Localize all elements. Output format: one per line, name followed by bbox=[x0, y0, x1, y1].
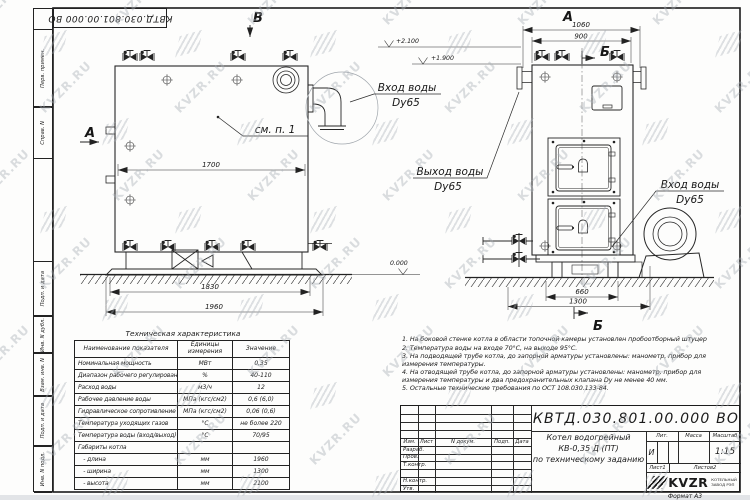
side-flanges bbox=[517, 67, 646, 89]
row-name: Номинальная мощность bbox=[75, 358, 178, 370]
sheet-value: 1 bbox=[662, 465, 665, 471]
section-label-b-top: Б bbox=[600, 45, 610, 60]
margin-box: Справ. N bbox=[34, 107, 52, 159]
inlet-label-right-line2: Dy65 bbox=[676, 194, 704, 206]
tech-header-name: Наименование показателя bbox=[75, 341, 178, 358]
note-item: 2. Температура воды на входе 70°С, на вы… bbox=[402, 345, 738, 353]
detail-boundary-circle bbox=[306, 72, 378, 144]
dim-1830: 1830 bbox=[201, 283, 219, 291]
table-row: Номинальная мощностьМВт0,35 bbox=[75, 358, 290, 370]
row-name: - высота bbox=[75, 478, 178, 490]
kvzr-logo-subtitle: КОТЕЛЬНЫЙ ЗАВОД РЭП bbox=[711, 478, 737, 487]
top-stamp-number: КВТД.030.801.00.000 ВО bbox=[48, 13, 172, 23]
row-unit: мм bbox=[178, 454, 233, 466]
col-izm: Изм. bbox=[401, 438, 418, 446]
margin-label: Взам. инв. N bbox=[40, 358, 46, 392]
margin-box: Перв. примен. bbox=[34, 29, 52, 107]
row-unit: МПа (кгс/см2) bbox=[178, 394, 233, 406]
sig-utv: Утв. bbox=[401, 485, 435, 493]
row-name: - ширина bbox=[75, 466, 178, 478]
drawing-sheet: 1700 1830 1960 1060 900 660 1300 +2.100 … bbox=[0, 0, 750, 500]
margin-box: Подп. и дата bbox=[34, 396, 52, 446]
inlet-label-left-line2: Dy65 bbox=[392, 97, 420, 109]
lower-furnace-door bbox=[548, 199, 620, 255]
row-name: - длина bbox=[75, 454, 178, 466]
front-base bbox=[536, 255, 642, 278]
sheet-label: Лист bbox=[649, 465, 662, 471]
col-data: Дата bbox=[513, 438, 531, 446]
table-row: Расход водым3/ч12 bbox=[75, 382, 290, 394]
col-list: Лист bbox=[418, 438, 435, 446]
row-name: Габариты котла bbox=[75, 442, 178, 454]
note-item: 1. На боковой стенке котла в области топ… bbox=[402, 336, 738, 344]
col-podp: Подп. bbox=[491, 438, 513, 446]
table-row: Температура уходящих газов°Сне более 220 bbox=[75, 418, 290, 430]
row-unit: мм bbox=[178, 466, 233, 478]
row-value: 0,06 (0,6) bbox=[233, 406, 290, 418]
row-value: 1300 bbox=[233, 466, 290, 478]
product-name-line: по техническому заданию bbox=[533, 455, 644, 466]
view-label-a-top: А bbox=[562, 10, 573, 25]
row-name: Температура уходящих газов bbox=[75, 418, 178, 430]
product-name-line: КВ-0,35 Д (ПТ) bbox=[558, 444, 618, 455]
skid-base bbox=[106, 250, 322, 275]
ground-lines bbox=[80, 275, 714, 288]
table-row: Рабочее давление водыМПа (кгс/см2)0,6 (6… bbox=[75, 394, 290, 406]
table-row: Диапазон рабочего регулирования%40-110 bbox=[75, 370, 290, 382]
row-unit: м3/ч bbox=[178, 382, 233, 394]
product-name: Котел водогрейный КВ-0,35 Д (ПТ) по техн… bbox=[531, 433, 646, 491]
blower-fan bbox=[639, 208, 704, 278]
row-unit: МВт bbox=[178, 358, 233, 370]
note-item: 5. Остальные технические требования по О… bbox=[402, 385, 738, 393]
elevation-marks bbox=[352, 41, 521, 275]
boiler-front-view bbox=[483, 48, 704, 285]
sig-tkontr: Т.контр. bbox=[401, 461, 435, 469]
lit-value: И bbox=[646, 441, 657, 463]
scale-label: Масштаб bbox=[709, 431, 741, 441]
left-margin-strip: Перв. примен. Справ. N Подп. и дата Инв.… bbox=[33, 8, 53, 492]
row-name: Рабочее давление воды bbox=[75, 394, 178, 406]
margin-box: Инв. N подл. bbox=[34, 446, 52, 493]
document-number: КВТД.030.801.00.000 ВО bbox=[531, 406, 741, 431]
dimensions bbox=[106, 26, 650, 316]
table-row: Габариты котла bbox=[75, 442, 290, 454]
elevation-1900: +1.900 bbox=[431, 55, 454, 62]
margin-box: Взам. инв. N bbox=[34, 353, 52, 396]
mass-label: Масса bbox=[678, 431, 709, 441]
section-label-b-bottom: Б bbox=[593, 319, 603, 334]
view-label-a-left: А bbox=[84, 126, 95, 141]
sheets-label: Листов bbox=[694, 465, 713, 471]
margin-label: Справ. N bbox=[40, 121, 46, 145]
sheets-total: Листов2 bbox=[669, 463, 741, 472]
inlet-label-left-line1: Вход воды bbox=[378, 82, 437, 94]
inlet-label-right-line1: Вход воды bbox=[661, 179, 720, 191]
control-panel bbox=[592, 86, 622, 110]
format-label: Формат А3 bbox=[640, 493, 730, 500]
margin-box: Подп. и дата bbox=[34, 261, 52, 316]
tech-header-value: Значение bbox=[233, 341, 290, 358]
inlet-elbow bbox=[308, 85, 346, 130]
margin-label: Подп. и дата bbox=[40, 403, 46, 438]
margin-label: Перв. примен. bbox=[40, 49, 46, 88]
elevation-0000: 0.000 bbox=[390, 260, 408, 267]
dim-1700: 1700 bbox=[202, 161, 220, 169]
row-unit: мм bbox=[178, 478, 233, 490]
scale-value: 1:15 bbox=[709, 441, 741, 463]
product-name-line: Котел водогрейный bbox=[547, 433, 631, 444]
row-value: не более 220 bbox=[233, 418, 290, 430]
row-value: 12 bbox=[233, 382, 290, 394]
tech-table: Наименование показателя Единицы измерени… bbox=[74, 340, 290, 490]
tech-characteristics: Техническая характеристика Наименование … bbox=[74, 329, 292, 490]
row-value: 2100 bbox=[233, 478, 290, 490]
sheets-value: 2 bbox=[713, 465, 716, 471]
kvzr-logo-text: KVZR bbox=[668, 475, 708, 490]
margin-label: Подп. и дата bbox=[40, 271, 46, 306]
row-value: 0,35 bbox=[233, 358, 290, 370]
row-unit: % bbox=[178, 370, 233, 382]
row-value: 70/95 bbox=[233, 430, 290, 442]
row-value: 0,6 (6,0) bbox=[233, 394, 290, 406]
row-name: Гидравлическое сопротивление котла bbox=[75, 406, 178, 418]
table-row: - длинамм1960 bbox=[75, 454, 290, 466]
margin-label: Инв. N дубл. bbox=[40, 318, 46, 352]
title-block: Изм. Лист N докум. Подп. Дата Разраб. Пр… bbox=[400, 405, 740, 492]
table-row: Гидравлическое сопротивление котлаМПа (к… bbox=[75, 406, 290, 418]
table-row: Температура воды (вход/выход)°С70/95 bbox=[75, 430, 290, 442]
row-value: 40-110 bbox=[233, 370, 290, 382]
detail-reference: см. п. 1 bbox=[255, 124, 296, 136]
technical-notes: 1. На боковой стенке котла в области топ… bbox=[402, 336, 738, 394]
note-item: 3. На подводящей трубе котла, до запорно… bbox=[402, 353, 738, 368]
dim-900: 900 bbox=[574, 33, 588, 41]
tech-header-unit: Единицы измерения bbox=[178, 341, 233, 358]
sheet-number: Лист1 bbox=[646, 463, 669, 472]
row-unit: МПа (кгс/см2) bbox=[178, 406, 233, 418]
dim-1300: 1300 bbox=[569, 298, 587, 306]
outlet-label-line1: Выход воды bbox=[417, 166, 484, 178]
upper-furnace-door bbox=[548, 138, 620, 196]
row-name: Температура воды (вход/выход) bbox=[75, 430, 178, 442]
view-label-v: В bbox=[253, 11, 263, 26]
dim-1060: 1060 bbox=[572, 21, 590, 29]
row-unit: °С bbox=[178, 430, 233, 442]
elevation-2100: +2.100 bbox=[396, 38, 419, 45]
kvzr-logo-icon bbox=[647, 476, 668, 489]
dim-1960: 1960 bbox=[205, 303, 223, 311]
sig-nkontr: Н.контр. bbox=[401, 477, 435, 485]
table-row: - высотамм2100 bbox=[75, 478, 290, 490]
sig-prov: Пров. bbox=[401, 454, 435, 462]
lit-label: Лит. bbox=[646, 431, 678, 441]
dim-660: 660 bbox=[575, 288, 589, 296]
margin-label: Инв. N подл. bbox=[40, 452, 46, 486]
top-flange bbox=[273, 67, 299, 93]
row-name: Диапазон рабочего регулирования bbox=[75, 370, 178, 382]
row-value: 1960 bbox=[233, 454, 290, 466]
sig-razrab: Разраб. bbox=[401, 446, 435, 454]
table-row: - ширинамм1300 bbox=[75, 466, 290, 478]
row-unit: °С bbox=[178, 418, 233, 430]
outlet-label-line2: Dy65 bbox=[434, 181, 462, 193]
margin-box: Инв. N дубл. bbox=[34, 316, 52, 353]
tech-table-title: Техническая характеристика bbox=[74, 329, 292, 338]
company-logo: KVZR КОТЕЛЬНЫЙ ЗАВОД РЭП bbox=[646, 472, 741, 493]
top-stamp: КВТД.030.801.00.000 ВО bbox=[53, 8, 167, 28]
kvzr-sub-line: ЗАВОД РЭП bbox=[711, 483, 737, 487]
row-value bbox=[233, 442, 290, 454]
note-item: 4. На отводящей трубе котла, до запорной… bbox=[402, 369, 738, 384]
row-unit bbox=[178, 442, 233, 454]
row-name: Расход воды bbox=[75, 382, 178, 394]
boiler-side-view bbox=[106, 51, 378, 276]
col-ndokum: N докум. bbox=[435, 438, 491, 446]
